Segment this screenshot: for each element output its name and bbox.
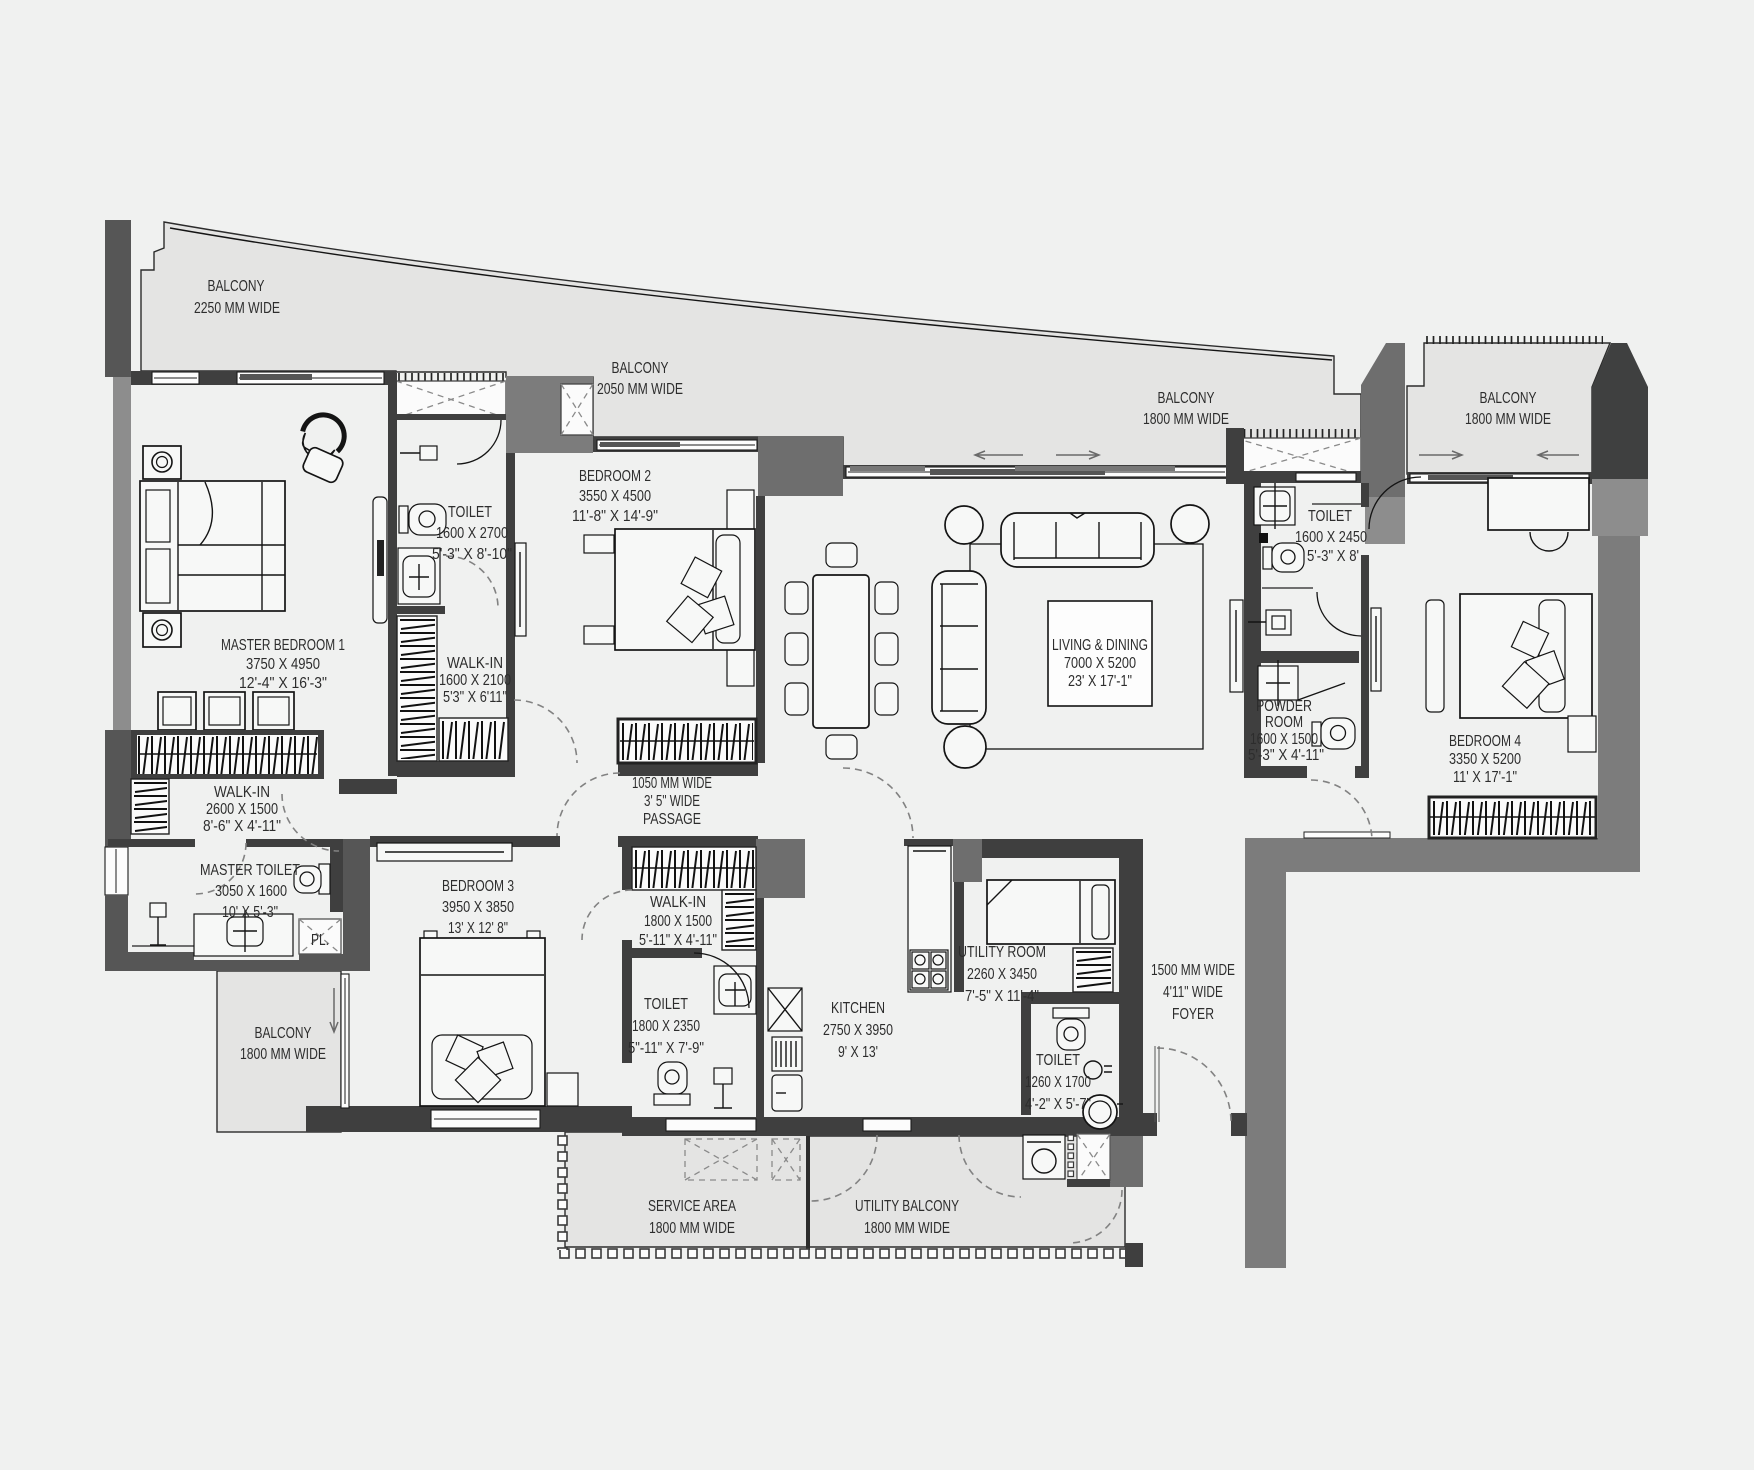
svg-text:1050 MM WIDE: 1050 MM WIDE [632, 775, 712, 792]
svg-text:5'-3" X 8'-10": 5'-3" X 8'-10" [432, 546, 512, 563]
svg-text:23' X 17'-1": 23' X 17'-1" [1068, 673, 1132, 690]
svg-text:UTILITY ROOM: UTILITY ROOM [958, 944, 1046, 961]
svg-text:7'-5" X 11'-4": 7'-5" X 11'-4" [965, 988, 1039, 1005]
svg-text:MASTER TOILET: MASTER TOILET [200, 862, 300, 879]
svg-text:2260 X 3450: 2260 X 3450 [967, 966, 1037, 983]
svg-text:1800 MM WIDE: 1800 MM WIDE [864, 1220, 950, 1237]
svg-text:BEDROOM 2: BEDROOM 2 [579, 468, 651, 485]
svg-text:1600 X 2700: 1600 X 2700 [436, 525, 508, 542]
svg-text:BALCONY: BALCONY [612, 360, 669, 377]
svg-text:2750 X 3950: 2750 X 3950 [823, 1022, 893, 1039]
svg-text:5'-11" X 4'-11": 5'-11" X 4'-11" [639, 932, 717, 949]
svg-text:BALCONY: BALCONY [208, 278, 265, 295]
svg-text:FOYER: FOYER [1172, 1006, 1214, 1023]
svg-text:TOILET: TOILET [644, 996, 688, 1013]
svg-text:POWDER: POWDER [1256, 698, 1312, 715]
svg-text:1600 X 2100: 1600 X 2100 [439, 672, 511, 689]
svg-text:3050 X 1600: 3050 X 1600 [215, 883, 287, 900]
svg-text:1800 MM WIDE: 1800 MM WIDE [1143, 411, 1229, 428]
svg-text:2050 MM WIDE: 2050 MM WIDE [597, 381, 683, 398]
svg-text:MASTER BEDROOM 1: MASTER BEDROOM 1 [221, 637, 345, 654]
svg-text:KITCHEN: KITCHEN [831, 1000, 885, 1017]
svg-text:5'3" X 6'11": 5'3" X 6'11" [443, 689, 507, 706]
svg-text:TOILET: TOILET [448, 504, 492, 521]
svg-text:BEDROOM 4: BEDROOM 4 [1449, 733, 1521, 750]
svg-text:LIVING & DINING: LIVING & DINING [1052, 637, 1148, 654]
svg-text:3' 5" WIDE: 3' 5" WIDE [644, 793, 700, 810]
svg-text:1500 MM WIDE: 1500 MM WIDE [1151, 962, 1235, 979]
svg-text:7000 X 5200: 7000 X 5200 [1064, 655, 1136, 672]
svg-text:BALCONY: BALCONY [255, 1025, 312, 1042]
svg-text:BEDROOM 3: BEDROOM 3 [442, 878, 514, 895]
svg-text:1800 X 2350: 1800 X 2350 [632, 1018, 700, 1035]
svg-text:3950 X 3850: 3950 X 3850 [442, 899, 514, 916]
svg-text:5'-3" X 8': 5'-3" X 8' [1307, 548, 1359, 565]
svg-text:WALK-IN: WALK-IN [650, 894, 706, 911]
svg-text:BALCONY: BALCONY [1480, 390, 1537, 407]
svg-text:1800 MM WIDE: 1800 MM WIDE [649, 1220, 735, 1237]
svg-text:11'-8" X 14'-9": 11'-8" X 14'-9" [572, 508, 658, 525]
svg-text:3550 X 4500: 3550 X 4500 [579, 488, 651, 505]
svg-text:4'-2" X 5'-7": 4'-2" X 5'-7" [1025, 1096, 1091, 1113]
svg-text:SERVICE AREA: SERVICE AREA [648, 1198, 736, 1215]
svg-text:5'-3" X 4'-11": 5'-3" X 4'-11" [1248, 747, 1324, 764]
svg-text:3750 X 4950: 3750 X 4950 [246, 656, 320, 673]
svg-text:2250 MM WIDE: 2250 MM WIDE [194, 300, 280, 317]
svg-text:1600 X 2450: 1600 X 2450 [1295, 529, 1367, 546]
svg-text:UTILITY BALCONY: UTILITY BALCONY [855, 1198, 959, 1215]
svg-text:PASSAGE: PASSAGE [643, 811, 701, 828]
svg-text:9' X 13': 9' X 13' [838, 1044, 878, 1061]
svg-text:1800 MM WIDE: 1800 MM WIDE [240, 1046, 326, 1063]
svg-text:TOILET: TOILET [1308, 508, 1352, 525]
svg-text:5"-11" X 7'-9": 5"-11" X 7'-9" [628, 1040, 704, 1057]
svg-text:WALK-IN: WALK-IN [447, 655, 503, 672]
svg-text:11' X 17'-1": 11' X 17'-1" [1453, 769, 1517, 786]
svg-text:1600 X 1500: 1600 X 1500 [1250, 731, 1318, 748]
svg-text:WALK-IN: WALK-IN [214, 784, 270, 801]
svg-text:2600 X 1500: 2600 X 1500 [206, 801, 278, 818]
svg-text:1800 MM WIDE: 1800 MM WIDE [1465, 411, 1551, 428]
svg-text:1260 X 1700: 1260 X 1700 [1025, 1074, 1091, 1091]
svg-text:ROOM: ROOM [1265, 714, 1303, 731]
svg-text:PL.: PL. [311, 932, 329, 949]
svg-text:4'11" WIDE: 4'11" WIDE [1163, 984, 1223, 1001]
svg-text:10' X 5'-3": 10' X 5'-3" [222, 904, 278, 921]
svg-text:1800 X 1500: 1800 X 1500 [644, 913, 712, 930]
svg-text:12'-4" X 16'-3": 12'-4" X 16'-3" [239, 675, 327, 692]
svg-text:13' X 12' 8": 13' X 12' 8" [448, 920, 508, 937]
svg-text:3350 X 5200: 3350 X 5200 [1449, 751, 1521, 768]
svg-text:TOILET: TOILET [1036, 1052, 1080, 1069]
svg-text:BALCONY: BALCONY [1158, 390, 1215, 407]
svg-text:8'-6" X 4'-11": 8'-6" X 4'-11" [203, 818, 281, 835]
